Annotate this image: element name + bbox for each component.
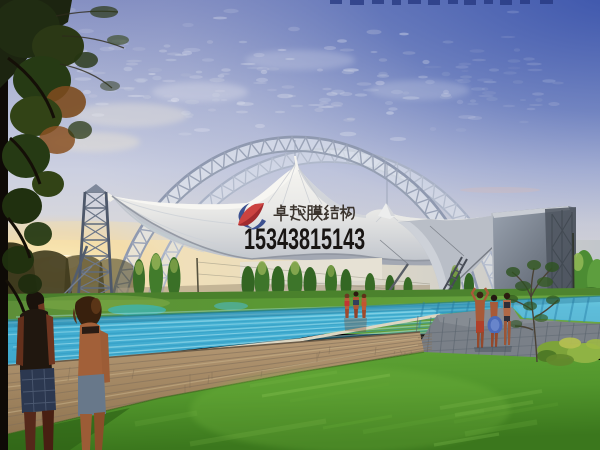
svg-text:15343815143: 15343815143	[244, 223, 365, 256]
